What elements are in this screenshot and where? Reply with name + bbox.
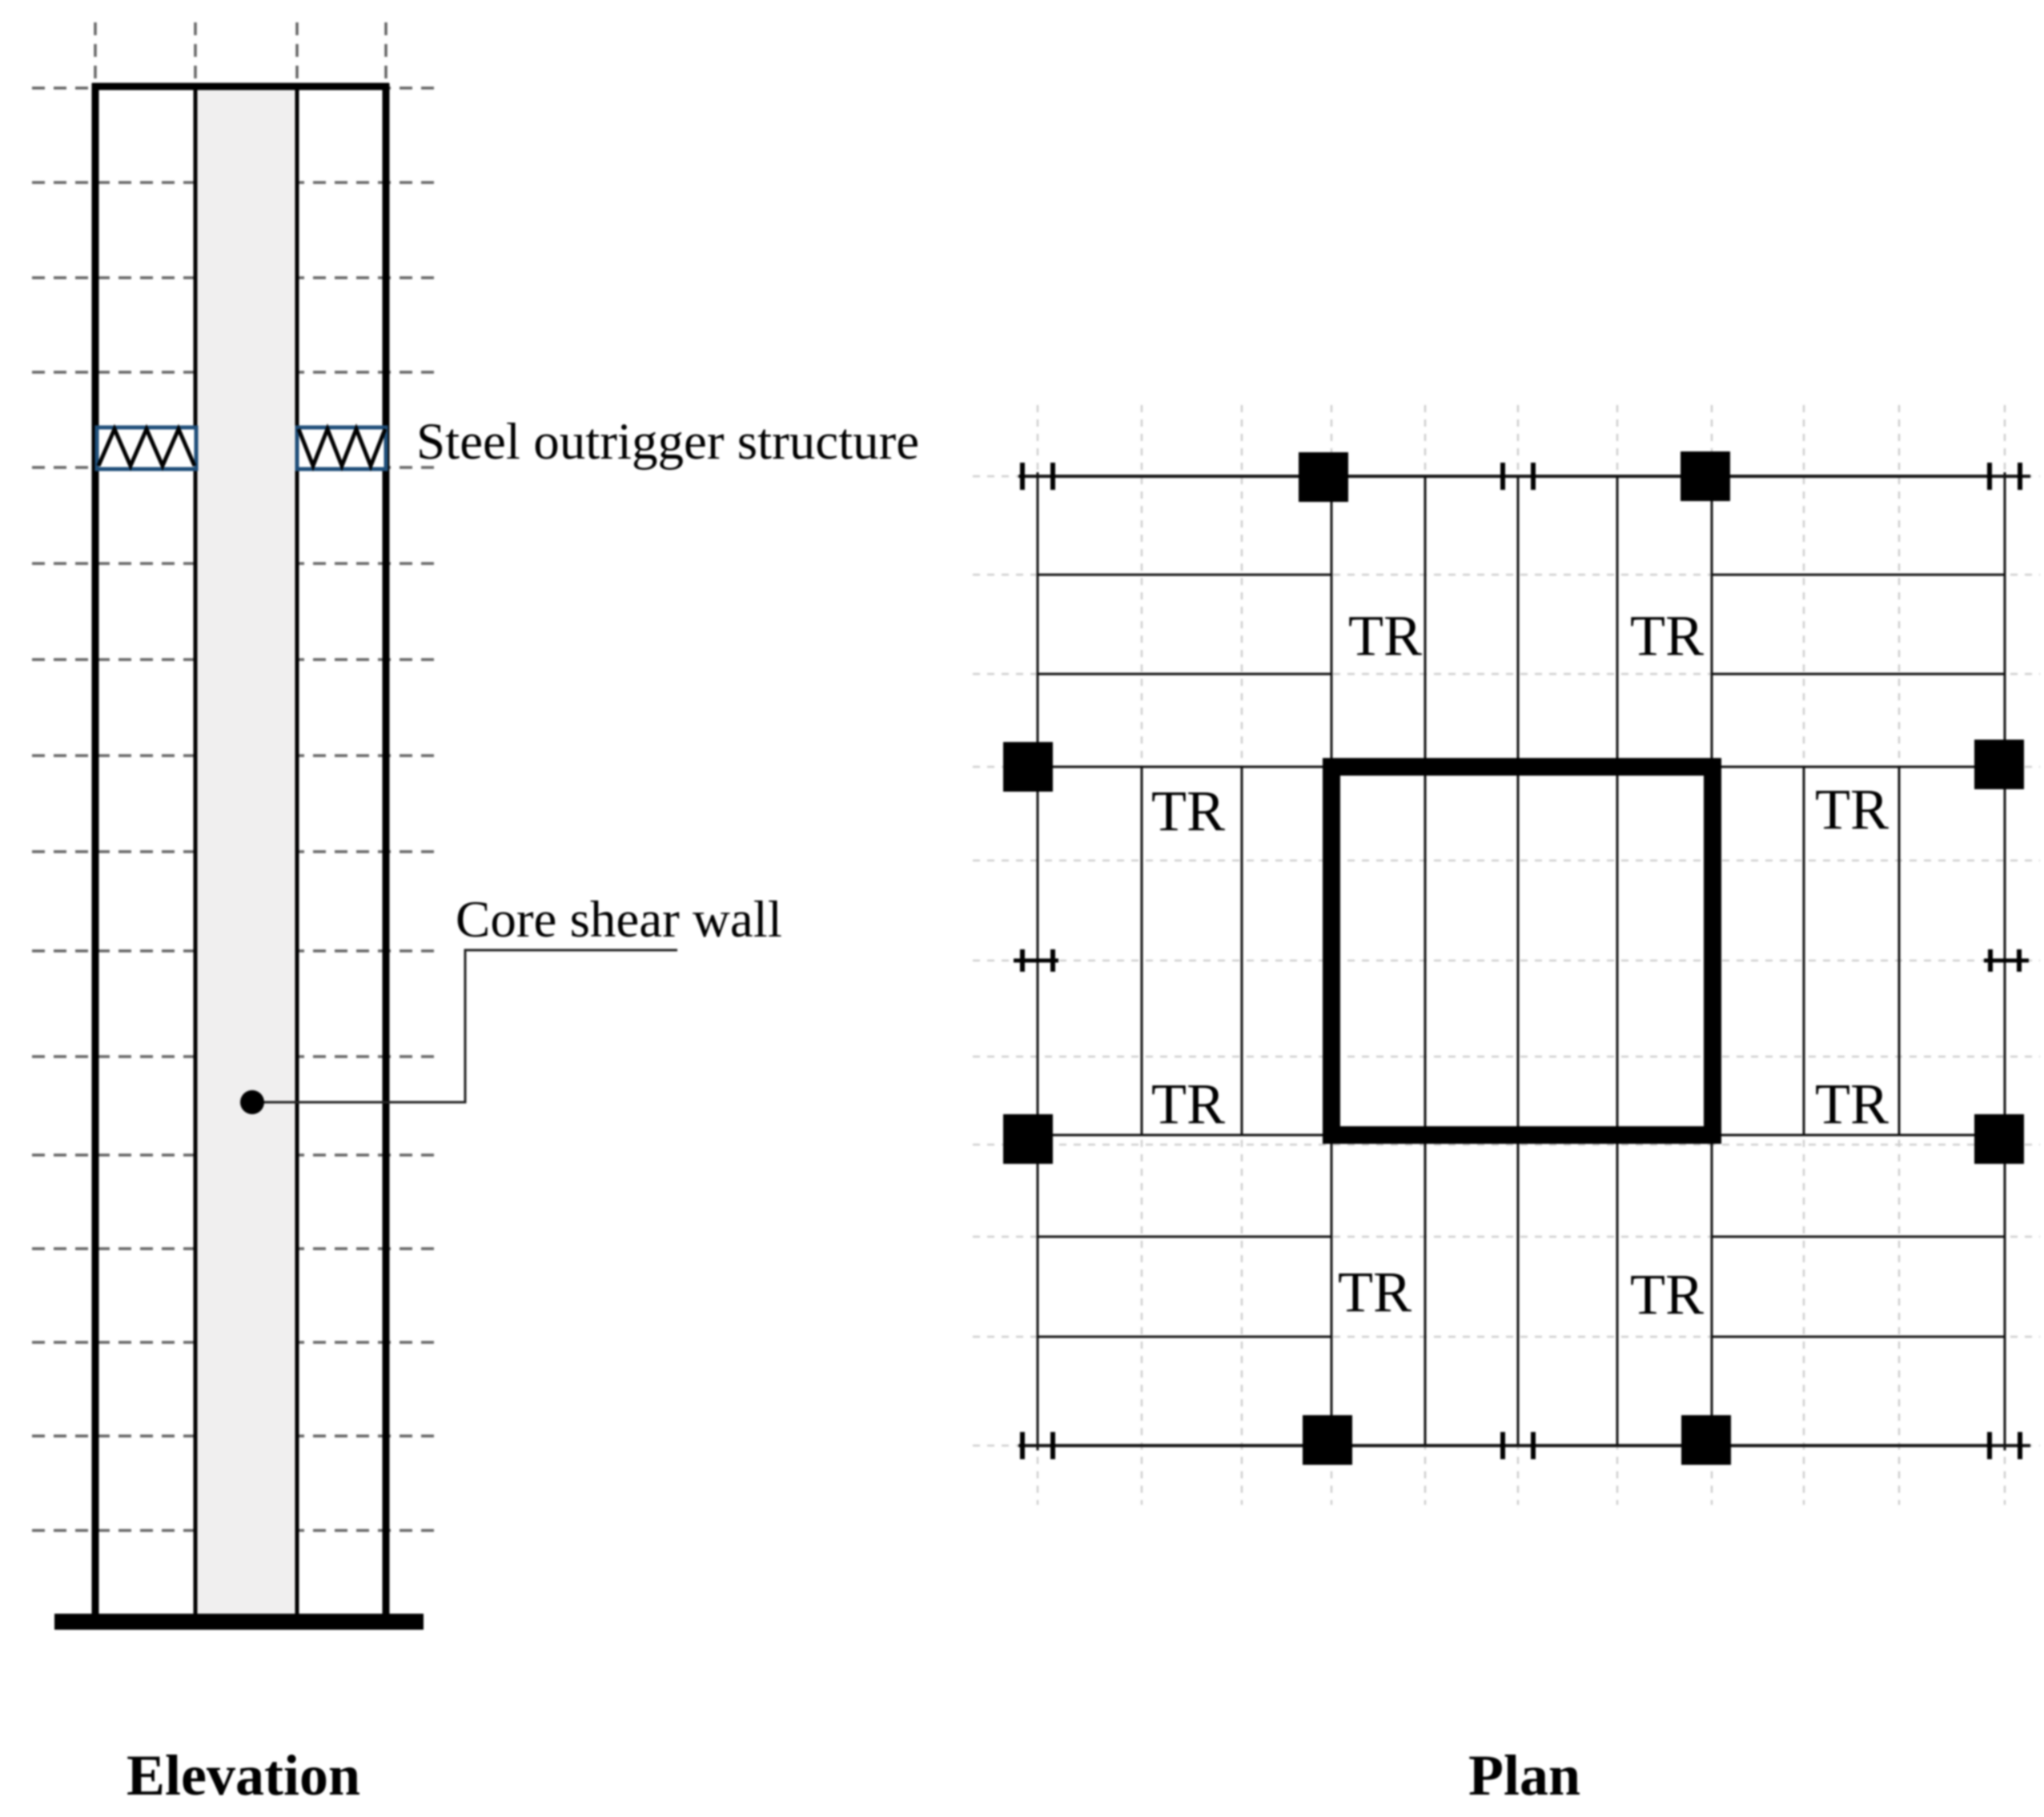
svg-text:TR: TR [1630,1262,1704,1326]
svg-text:Core shear wall: Core shear wall [456,891,782,949]
svg-text:TR: TR [1348,604,1422,668]
svg-text:TR: TR [1815,777,1889,841]
svg-text:TR: TR [1815,1072,1889,1136]
svg-text:TR: TR [1338,1260,1412,1324]
svg-text:TR: TR [1630,604,1704,668]
svg-text:TR: TR [1151,1072,1225,1136]
svg-text:Steel outrigger structure: Steel outrigger structure [416,413,919,471]
svg-text:Plan: Plan [1468,1743,1580,1807]
svg-text:Elevation: Elevation [126,1743,360,1807]
svg-text:TR: TR [1151,779,1225,843]
